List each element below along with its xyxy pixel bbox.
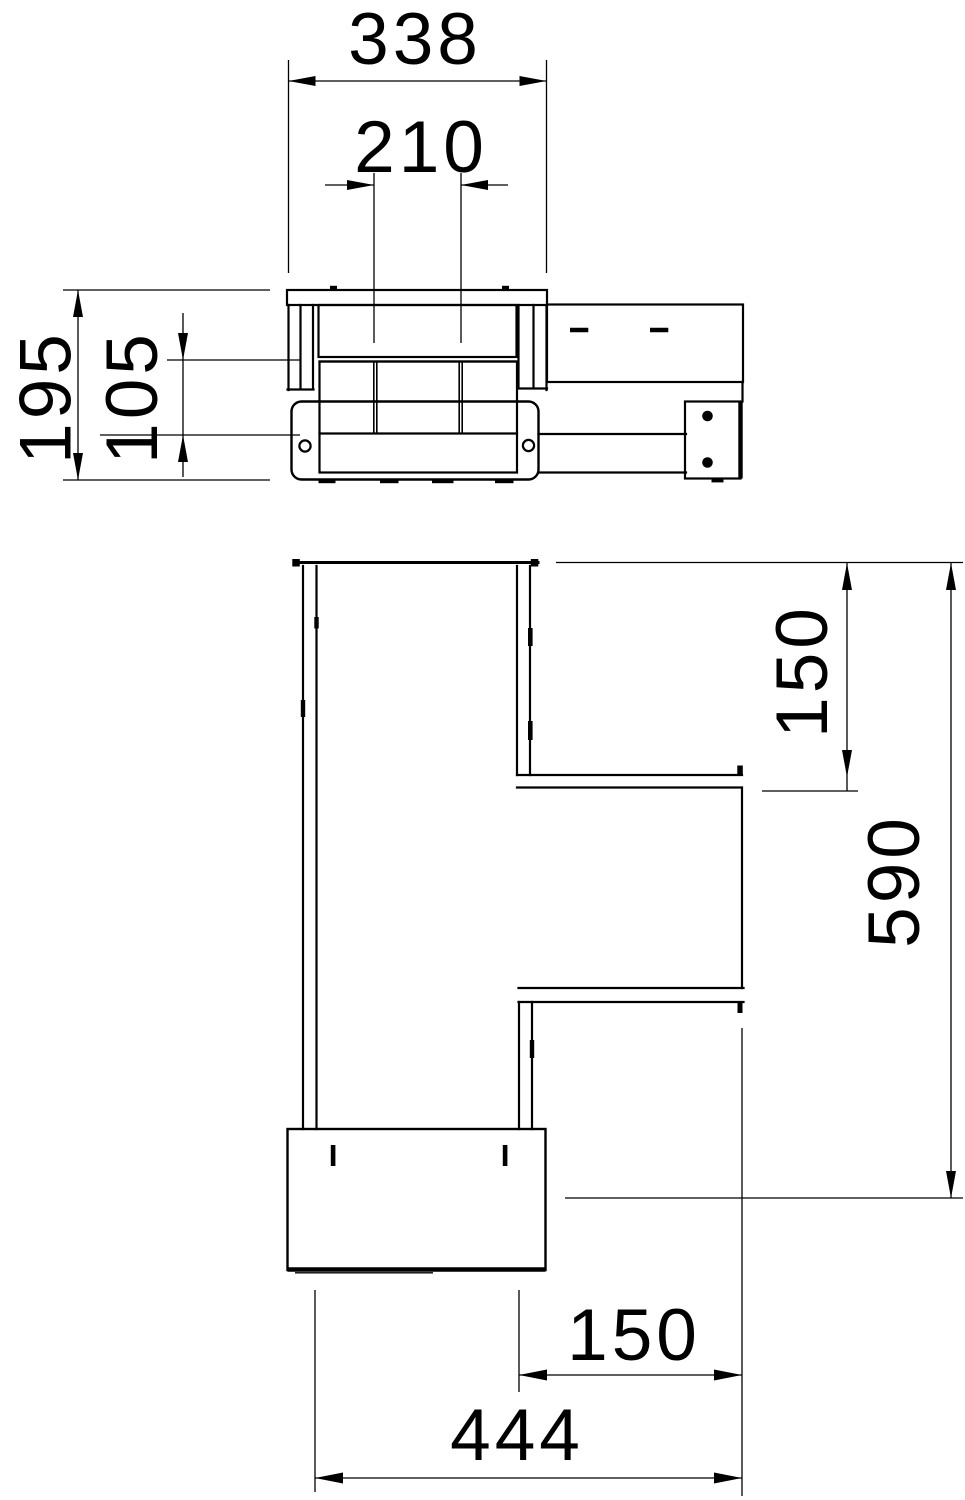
wall-clip-mark (314, 617, 318, 629)
wall-clip-mark (530, 1040, 534, 1058)
lower-body-box (320, 362, 518, 473)
front-view: 338 210 195 105 (6, 0, 744, 483)
foot-tick (432, 480, 454, 483)
dim-front-inner-width: 210 (325, 107, 508, 343)
arrowhead-up (946, 563, 956, 590)
right-wall-upper (517, 566, 530, 775)
body-dividers (374, 362, 462, 434)
dim-front-body-height: 105 (92, 313, 300, 477)
arrowhead-right (714, 1370, 742, 1381)
dim-text-overall-length: 590 (854, 814, 935, 948)
dim-text-body-height: 105 (92, 330, 173, 464)
arrowhead-up (73, 290, 83, 317)
dim-text-overall-width: 338 (348, 0, 482, 80)
left-side-rail (288, 305, 314, 390)
arrowhead-right (714, 1473, 742, 1484)
foot-tick (712, 479, 724, 483)
box-tick (503, 1145, 508, 1166)
cap-end-tick (292, 559, 300, 567)
right-wall-lower (519, 1002, 532, 1129)
plate-screw-tick (502, 286, 509, 291)
dim-plan-branch-depth: 150 (762, 563, 858, 791)
arrowhead-left (315, 1473, 343, 1484)
right-duct-box (547, 305, 743, 383)
wall-clip-mark (528, 628, 533, 646)
foot-tick (495, 480, 514, 483)
arrowhead-left (519, 1370, 547, 1381)
arrowhead-left (289, 76, 316, 86)
arrowhead-up (178, 435, 188, 462)
dim-lines (325, 173, 508, 343)
mounting-bracket (292, 402, 539, 480)
plan-view: 150 590 150 444 (288, 559, 964, 1496)
left-wall (303, 566, 317, 1129)
drawing-page: 338 210 195 105 (0, 0, 965, 1500)
dim-text-overall-width: 444 (450, 1395, 584, 1476)
lower-branch-shelf (519, 988, 744, 1002)
shelf-end-tick (738, 1003, 743, 1013)
wall-clip-mark (301, 700, 305, 717)
shelf-end-tick (737, 766, 743, 776)
arrowhead-down (946, 1171, 956, 1198)
arrowhead-up (842, 563, 852, 590)
arrowhead-down (178, 333, 188, 360)
foot-tick (319, 480, 336, 483)
cap-end-tick (531, 559, 539, 567)
plate-screw-tick (330, 286, 337, 291)
rivet-dot (702, 457, 713, 468)
rivet-dot (702, 411, 713, 422)
right-side-rail (518, 305, 547, 390)
lower-right-strip (539, 434, 687, 473)
arrowhead-right (520, 76, 547, 86)
upper-body-box (319, 305, 517, 357)
box-tick (331, 1145, 336, 1166)
dim-text-branch-depth: 150 (762, 604, 843, 738)
foot-tick (380, 480, 399, 483)
wall-clip-mark (528, 721, 533, 740)
bracket-hole (523, 440, 534, 451)
front-view-part (287, 286, 743, 483)
drawing-canvas: 338 210 195 105 (0, 0, 965, 1500)
arrowhead-down (842, 750, 852, 777)
dim-text-overall-height: 195 (6, 330, 87, 464)
upper-branch-shelf (517, 775, 742, 788)
top-plate (287, 290, 547, 305)
dim-text-branch-width: 150 (567, 1295, 701, 1376)
bracket-hole (299, 440, 310, 451)
right-end-plate (685, 402, 741, 479)
dim-text-inner-width: 210 (354, 107, 488, 188)
plan-view-part (288, 559, 744, 1273)
